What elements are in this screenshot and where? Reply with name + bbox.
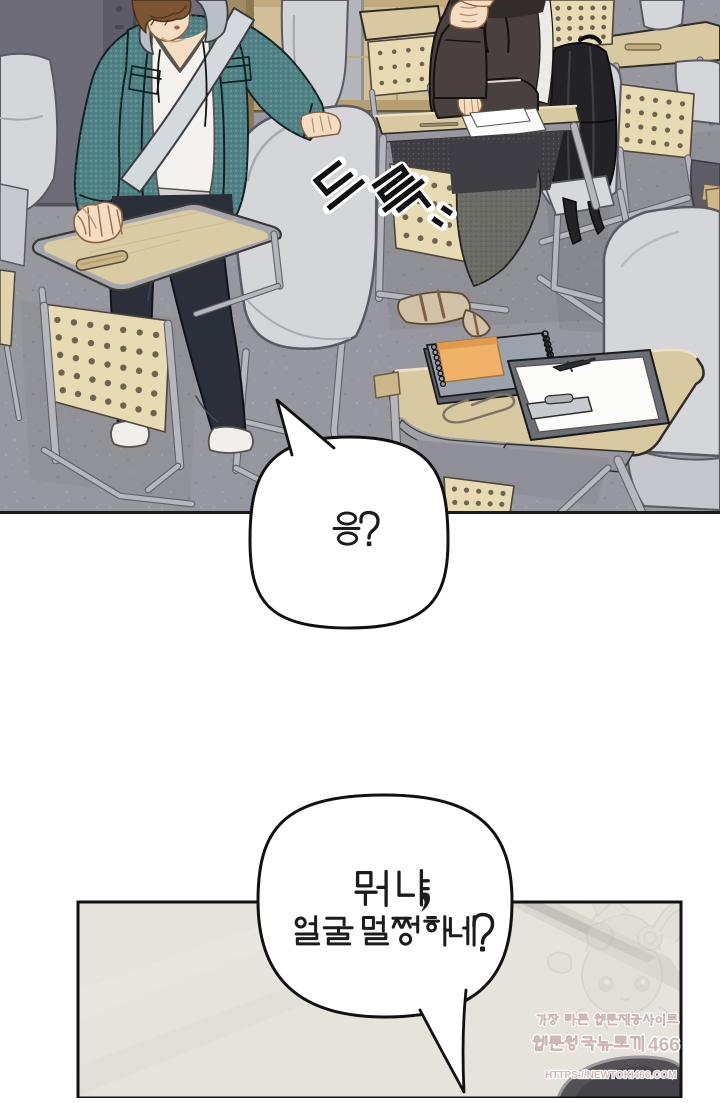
svg-text:466: 466 <box>648 1035 680 1056</box>
svg-text:HTTPS://NEWTOKI466.COM: HTTPS://NEWTOKI466.COM <box>545 1070 677 1081</box>
